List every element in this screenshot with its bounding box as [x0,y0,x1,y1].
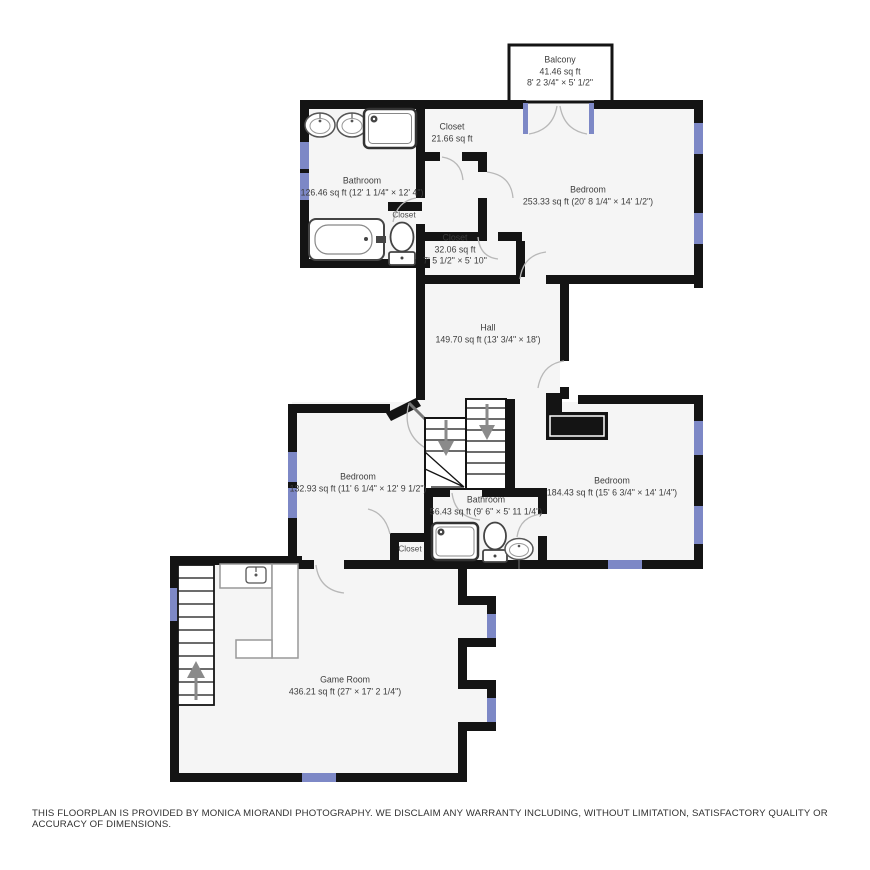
room-label-closet-mid: Closet [392,211,415,222]
shower-icon [364,109,416,148]
room-name: Closet [392,211,415,222]
room-label-bedroom-right: Bedroom 184.43 sq ft (15' 6 3/4" × 14' 1… [547,475,677,498]
room-label-game-room: Game Room 436.21 sq ft (27' × 17' 2 1/4"… [289,674,401,697]
toilet-icon [483,523,507,563]
room-name: Closet [423,233,487,245]
balcony-door-pane [589,103,594,134]
window [694,213,703,244]
bathtub-icon [309,219,386,260]
room-label-closet-top: Closet 21.66 sq ft [431,121,472,144]
sink-icon [337,113,367,137]
sink-icon [305,113,335,137]
bar-sink-icon [246,567,266,583]
room-label-bedroom-left: Bedroom 132.93 sq ft (11' 6 1/4" × 12' 9… [290,471,427,494]
room-label-bathroom-upper: Bathroom 126.46 sq ft (12' 1 1/4" × 12' … [301,175,424,198]
room-area: 436.21 sq ft (27' × 17' 2 1/4") [289,686,401,698]
room-name: Balcony [527,55,593,67]
room-area: 56.43 sq ft (9' 6" × 5' 11 1/4") [430,506,542,518]
window [694,123,703,154]
room-name: Bedroom [547,475,677,487]
room-label-closet-32: Closet 32.06 sq ft 7' 5 1/2" × 5' 10" [423,233,487,268]
floorplan-page: Balcony 41.46 sq ft 8' 2 3/4" × 5' 1/2" … [0,0,870,870]
room-label-bathroom-lower: Bathroom 56.43 sq ft (9' 6" × 5' 11 1/4"… [430,494,542,517]
room-name: Closet [398,545,421,556]
room-area: 32.06 sq ft [423,244,487,256]
room-name: Game Room [289,674,401,686]
room-name: Hall [435,322,540,334]
room-label-closet-bottom: Closet [398,545,421,556]
room-name: Bathroom [301,175,424,187]
room-name: Bedroom [290,471,427,483]
room-area: 132.93 sq ft (11' 6 1/4" × 12' 9 1/2") [290,483,427,495]
room-label-balcony: Balcony 41.46 sq ft 8' 2 3/4" × 5' 1/2" [527,55,593,90]
room-dims: 7' 5 1/2" × 5' 10" [423,256,487,268]
room-area: 149.70 sq ft (13' 3/4" × 18') [435,334,540,346]
room-label-hall: Hall 149.70 sq ft (13' 3/4" × 18') [435,322,540,345]
room-name: Bathroom [430,494,542,506]
shower-icon [432,523,478,560]
room-dims: 8' 2 3/4" × 5' 1/2" [527,78,593,90]
window [487,698,496,722]
window [608,560,642,569]
window [694,421,703,455]
room-name: Bedroom [523,184,653,196]
room-area: 184.43 sq ft (15' 6 3/4" × 14' 1/4") [547,487,677,499]
fireplace-chimney [546,412,608,440]
room-area: 41.46 sq ft [527,66,593,78]
window [694,506,703,544]
room-label-bedroom-upper: Bedroom 253.33 sq ft (20' 8 1/4" × 14' 1… [523,184,653,207]
room-name: Closet [431,121,472,133]
toilet-icon [389,223,415,266]
room-area: 253.33 sq ft (20' 8 1/4" × 14' 1/2") [523,196,653,208]
staircase-game-room [178,565,214,705]
room-area: 21.66 sq ft [431,133,472,145]
window [487,614,496,638]
disclaimer-text: THIS FLOORPLAN IS PROVIDED BY MONICA MIO… [32,808,842,830]
window [302,773,336,782]
room-area: 126.46 sq ft (12' 1 1/4" × 12' 4") [301,187,424,199]
window [300,142,309,169]
balcony-door-pane [523,103,528,134]
